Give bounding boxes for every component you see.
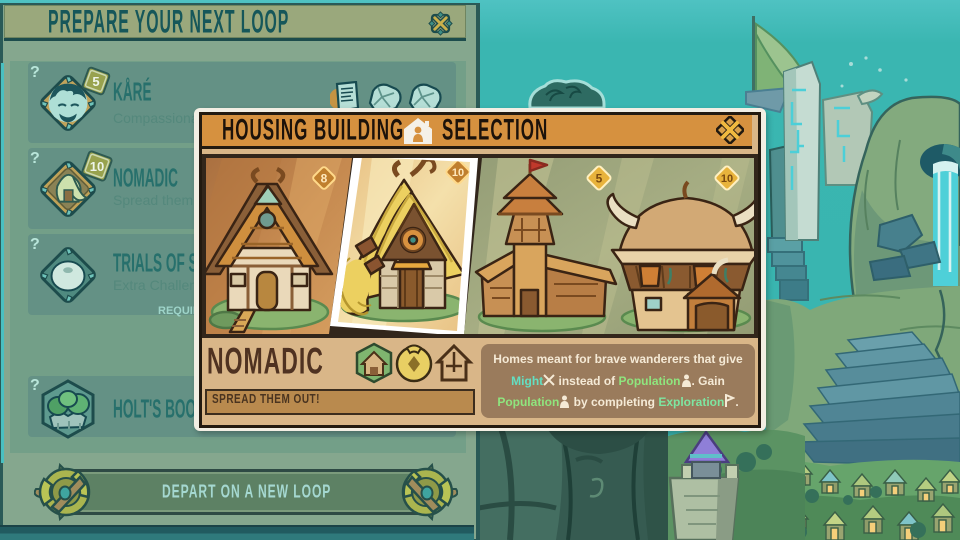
svg-text:5: 5 [596, 172, 603, 186]
svg-text:10: 10 [90, 159, 104, 174]
svg-text:8: 8 [321, 172, 328, 186]
svg-text:5: 5 [92, 74, 99, 89]
svg-text:10: 10 [721, 173, 733, 185]
svg-text:10: 10 [452, 167, 464, 179]
